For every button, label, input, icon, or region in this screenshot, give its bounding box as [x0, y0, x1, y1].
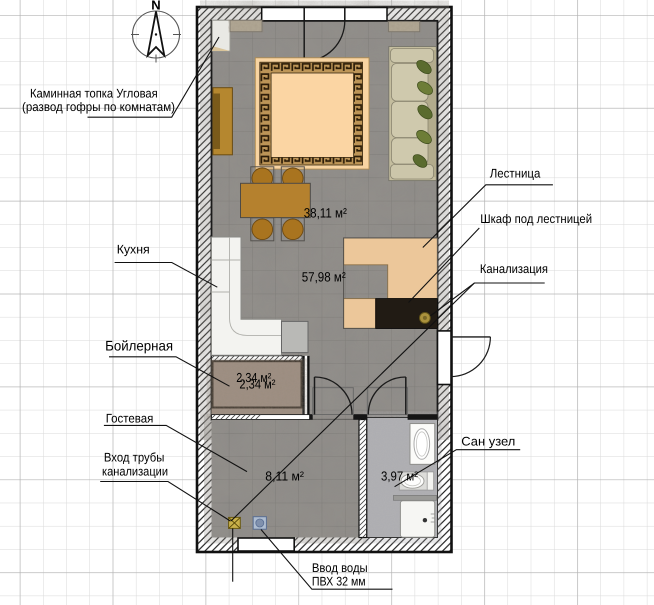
svg-text:N: N [151, 0, 160, 13]
svg-text:(развод гофры по комнатам): (развод гофры по комнатам) [22, 100, 175, 114]
svg-text:8,11 м²: 8,11 м² [265, 468, 304, 483]
svg-text:2,34 м²: 2,34 м² [239, 377, 276, 392]
svg-text:Бойлерная: Бойлерная [105, 338, 173, 354]
svg-text:38,11 м²: 38,11 м² [304, 205, 348, 220]
svg-text:Лестница: Лестница [490, 166, 541, 180]
svg-text:57,98 м²: 57,98 м² [302, 270, 346, 285]
svg-text:ПВХ 32 мм: ПВХ 32 мм [312, 575, 366, 589]
svg-text:Ввод воды: Ввод воды [312, 561, 368, 575]
svg-text:Сан узел: Сан узел [461, 434, 515, 448]
svg-text:Канализация: Канализация [480, 262, 548, 276]
svg-text:Кухня: Кухня [117, 243, 150, 257]
svg-text:Вход трубы: Вход трубы [104, 451, 165, 465]
svg-text:Каминная топка Угловая: Каминная топка Угловая [30, 87, 158, 101]
svg-text:канализации: канализации [102, 465, 168, 479]
svg-text:Шкаф под лестницей: Шкаф под лестницей [480, 212, 592, 226]
svg-text:Гостевая: Гостевая [106, 411, 154, 425]
svg-text:3,97 м²: 3,97 м² [381, 468, 419, 483]
